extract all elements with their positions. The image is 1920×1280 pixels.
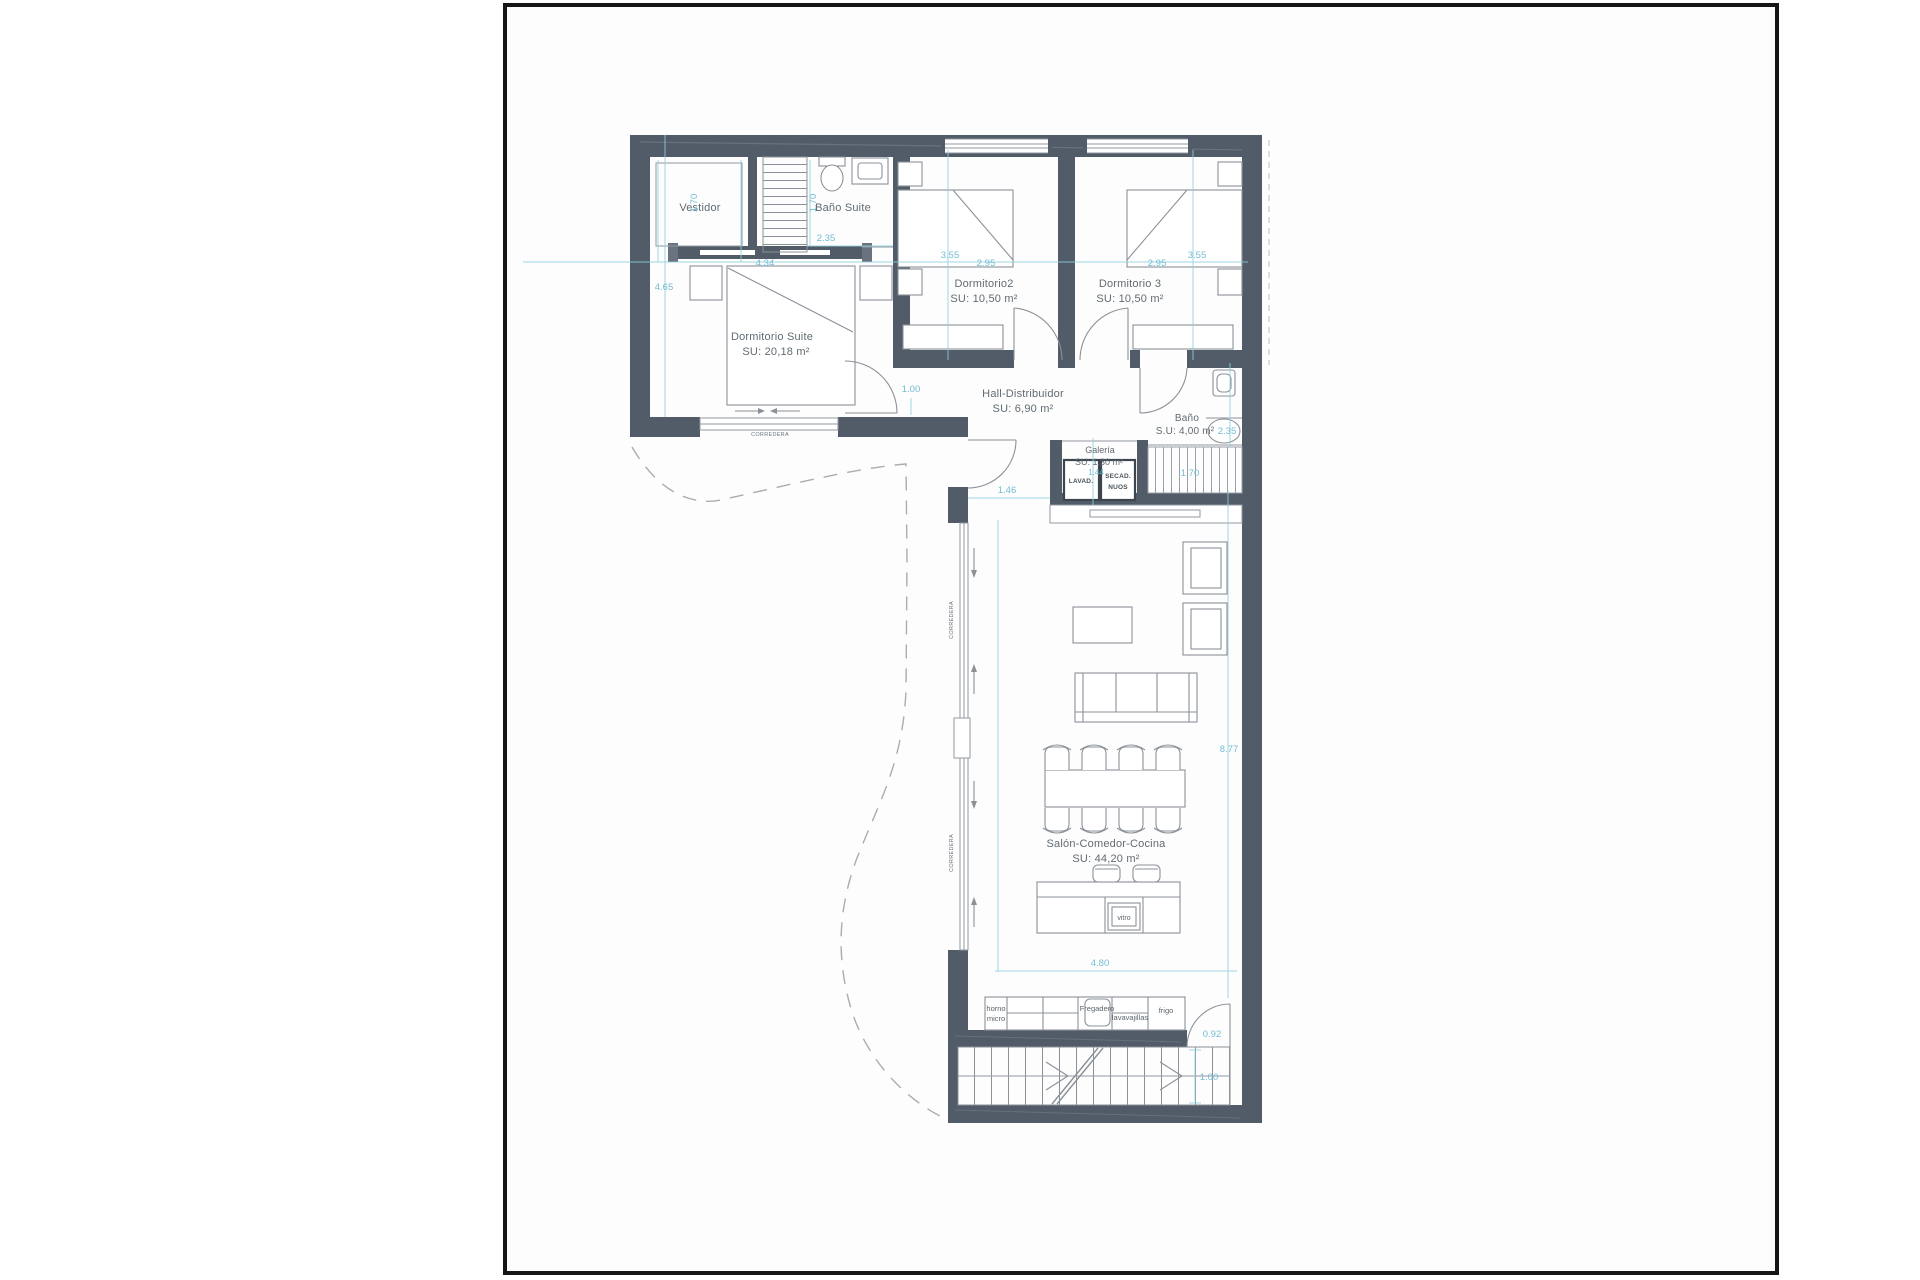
bano-suite-depth-dim: 2.35 (817, 233, 836, 244)
bano-width-dim: 2.35 (1218, 426, 1237, 437)
dormitorio2-depth-dim: 3.55 (941, 250, 960, 261)
corredera-label-salon-1: CORREDERA (949, 601, 955, 639)
dryer-label-1: SECAD. (1105, 473, 1131, 480)
upper-staircase (763, 157, 807, 252)
dormitorio2-area: SU: 10,50 m² (950, 293, 1017, 305)
salon-label: Salón-Comedor-Cocina (1047, 838, 1167, 850)
suite-nightstand-left (690, 266, 722, 300)
oven-label-2: micro (987, 1014, 1005, 1023)
dishwasher-label: lavavajillas (1112, 1013, 1149, 1022)
vitro-label: vitro (1117, 915, 1130, 922)
bano-suite-label: Baño Suite (815, 202, 871, 214)
salon-area: SU: 44,20 m² (1072, 853, 1139, 865)
ext-stair-dim: 1.00 (1200, 1072, 1219, 1083)
hall-area: SU: 6,90 m² (993, 403, 1054, 415)
floor-plan-canvas: CORREDERA (0, 0, 1920, 1280)
suite-nightstand-right (860, 266, 892, 300)
salon-width-dim: 4.80 (1091, 958, 1110, 969)
kitchen-door-dim: 0.92 (1203, 1029, 1222, 1040)
armchair-1 (1183, 542, 1227, 594)
dormitorio2-width-dim: 2.95 (977, 258, 996, 269)
dining-table (1045, 770, 1185, 807)
salon-height-dim: 8.77 (1220, 744, 1239, 755)
fridge-label: frigo (1159, 1006, 1174, 1015)
galeria-label: Galería (1085, 445, 1115, 455)
coffee-table (1073, 607, 1132, 643)
stair-width-dim: 1.70 (1181, 468, 1200, 479)
dormitorio-suite-label: Dormitorio Suite (731, 331, 813, 343)
kitchen-counter (985, 997, 1185, 1030)
corredera-label-suite: CORREDERA (751, 432, 789, 438)
suite-height-dim: 4.65 (655, 282, 674, 293)
hall-width-dim: 1.00 (902, 384, 921, 395)
sink-label: Fregadero (1080, 1004, 1115, 1013)
dormitorio3-label: Dormitorio 3 (1099, 278, 1161, 290)
toilet-suite (819, 157, 845, 191)
sofa (1075, 673, 1197, 722)
suite-width-dim: 4.34 (756, 258, 775, 269)
dormitorio3-depth-dim: 3.55 (1188, 250, 1207, 261)
bano-label: Baño (1175, 413, 1199, 424)
bano-suite-width-dim: 1.70 (808, 194, 819, 213)
washer-label: LAVAD. (1069, 478, 1093, 485)
dormitorio-suite-area: SU: 20,18 m² (742, 346, 809, 358)
galeria-width-dim: 1.44 (1088, 468, 1104, 477)
passage-dim: 1.46 (998, 485, 1017, 496)
dryer-label-2: NUOS (1108, 484, 1128, 491)
exterior-staircase (958, 1047, 1230, 1105)
gallery-window (1050, 505, 1242, 523)
armchair-2 (1183, 603, 1227, 655)
bano-area: S.U: 4,00 m² (1156, 426, 1215, 437)
oven-label-1: horno (986, 1004, 1005, 1013)
dormitorio2-label: Dormitorio2 (954, 278, 1013, 290)
galeria-area: SU: 1,30 m² (1075, 457, 1123, 467)
dormitorio3-width-dim: 2.95 (1148, 258, 1167, 269)
corredera-label-salon-2: CORREDERA (949, 834, 955, 872)
hall-label: Hall-Distribuidor (982, 388, 1064, 400)
dormitorio3-area: SU: 10,50 m² (1096, 293, 1163, 305)
vestidor-label: Vestidor (679, 202, 720, 214)
vestidor-width-dim: 1.70 (689, 194, 700, 213)
sink-suite (852, 158, 888, 184)
